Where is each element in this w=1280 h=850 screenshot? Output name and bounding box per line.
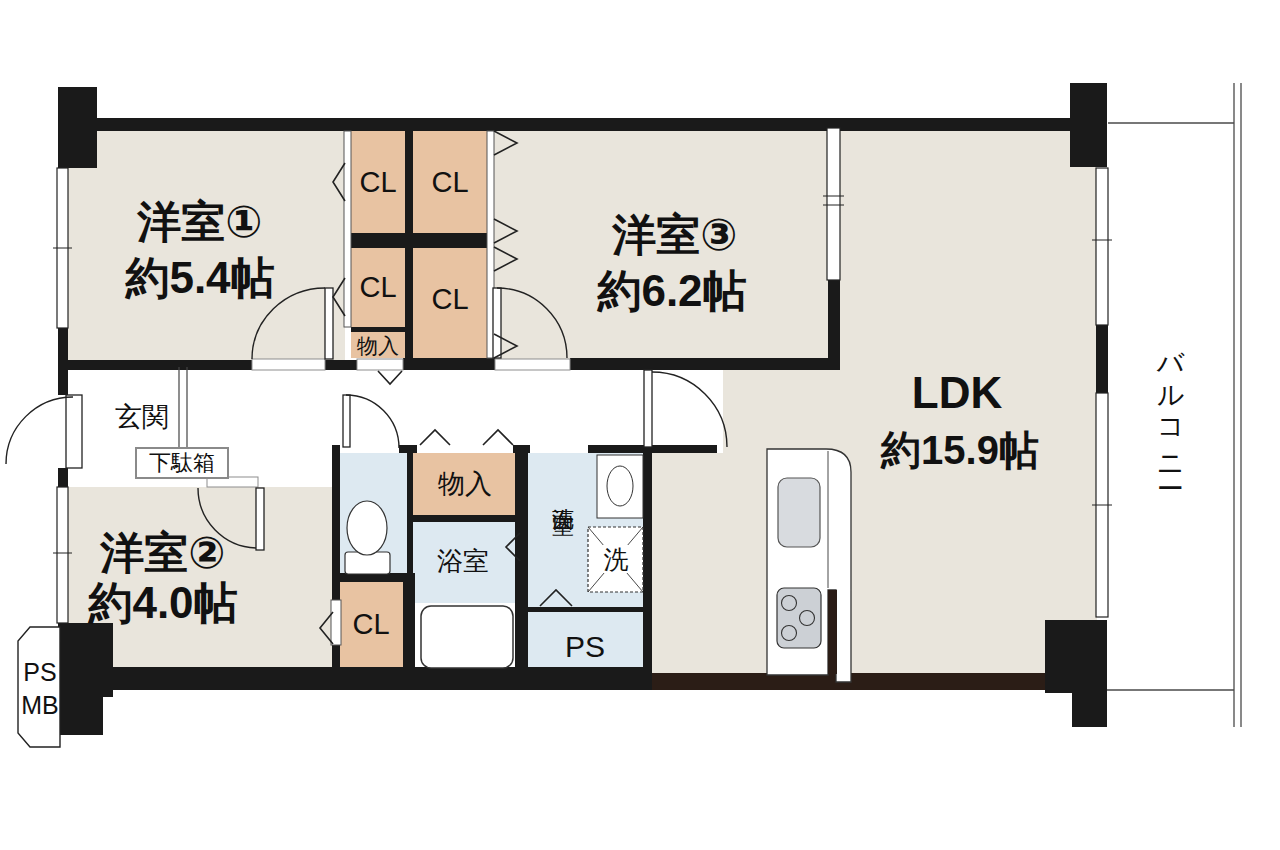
room1-size-label: 約5.4帖 [90, 253, 310, 303]
wall-corner-bottom-left [58, 697, 103, 735]
wall-closet-divider [345, 233, 490, 248]
kitchen-counter [767, 449, 851, 682]
wall-storage-bath [413, 515, 515, 522]
closet5-label: CL [341, 609, 401, 639]
room1-door-opening [252, 359, 325, 370]
vanity-basin-icon [607, 466, 633, 506]
stove-icon [777, 588, 821, 648]
wall-bath-washroom [515, 453, 528, 670]
wall-washroom-ldk [643, 445, 652, 683]
closet3-label: CL [420, 167, 480, 197]
ldk-size-label: 約15.9帖 [830, 428, 1090, 472]
ldk-door-swing [652, 372, 727, 447]
entrance-label: 玄関 [110, 402, 174, 432]
washer-label: 洗 [601, 545, 631, 573]
washroom-label: 洗面室 [547, 490, 579, 586]
wall-right [1096, 325, 1108, 393]
mb-box-label: MB [20, 691, 60, 719]
entry-door-swing [6, 397, 73, 464]
wall-hall-top [403, 358, 495, 370]
floorplan-canvas: 洋室① 約5.4帖 洋室② 約4.0帖 洋室③ 約6.2帖 LDK 約15.9帖… [0, 0, 1280, 850]
ldk-door-leaf [644, 370, 652, 447]
entry-door-leaf [66, 395, 82, 468]
closet4-label: CL [420, 284, 480, 314]
storage-upper-label: 物入 [351, 333, 405, 357]
washroom-door-opening [530, 446, 588, 453]
ps-mb-box [18, 627, 60, 747]
wall-hall-top [570, 358, 840, 370]
wall-hall-bottom [513, 445, 530, 453]
room2-size-label: 約4.0帖 [53, 578, 273, 628]
wall-corner-bottom-right [1072, 693, 1107, 727]
wall-hall-top [325, 360, 357, 370]
ldk-name-label: LDK [877, 370, 1037, 416]
wall-corner-top-left [58, 87, 97, 168]
wall-washroom-ps [523, 607, 648, 612]
kitchen-sink-icon [778, 478, 820, 547]
balcony-label: バルコニー [1150, 332, 1190, 527]
ps-box-label: PS [20, 658, 60, 686]
wall-toilet-bath [407, 453, 413, 573]
storage-center-label: 物入 [419, 469, 511, 499]
toilet-door-leaf [343, 395, 350, 447]
wall-hall-top [58, 360, 252, 370]
wall-hall-bottom [652, 445, 717, 453]
wall-corner-top-right [1070, 83, 1107, 167]
storage-center-door-mark [483, 430, 513, 445]
wall-closet5-right [403, 573, 415, 667]
bathroom-label: 浴室 [416, 546, 510, 576]
wall-corner-bottom-right [1045, 620, 1107, 693]
room3-size-label: 約6.2帖 [562, 266, 782, 316]
wall-left [58, 468, 68, 487]
closet5-door-opening [331, 600, 341, 645]
floorplan-drawing [0, 0, 1280, 850]
shoe-cabinet-label: 下駄箱 [135, 447, 229, 479]
wall-hall-bottom [588, 445, 652, 453]
room1-name-label: 洋室① [90, 197, 310, 247]
closet1-label: CL [348, 167, 408, 197]
window-ldk-upper [1096, 168, 1108, 325]
storage-center-door-mark [420, 430, 450, 445]
wall-room3-ldk [828, 280, 840, 370]
room2-name-label: 洋室② [53, 528, 273, 578]
storage-center-opening [417, 446, 513, 453]
sliding-partition-room3-ldk [827, 128, 840, 280]
toilet-door-swing [346, 395, 399, 448]
entrance-step-line [179, 367, 187, 447]
wall-hall-bottom [399, 445, 417, 453]
storage-upper-door-mark [378, 371, 402, 384]
pipe-space-label: PS [545, 631, 625, 663]
room3-name-label: 洋室③ [565, 210, 785, 260]
toilet-door-opening [350, 446, 399, 453]
room3-door-opening [495, 359, 570, 370]
wall-top [95, 118, 1070, 131]
kitchen-wall-stub [828, 590, 837, 674]
wall-bottom [103, 667, 652, 690]
room1-door-leaf [325, 288, 333, 359]
wall-closet-divider [351, 327, 405, 332]
closet2-label: CL [348, 272, 408, 302]
toilet-bowl-icon [347, 501, 387, 555]
bathtub-icon [421, 606, 513, 668]
room3-door-leaf [493, 288, 501, 358]
ldk-floor [652, 453, 723, 683]
storage-upper-opening [357, 359, 403, 370]
